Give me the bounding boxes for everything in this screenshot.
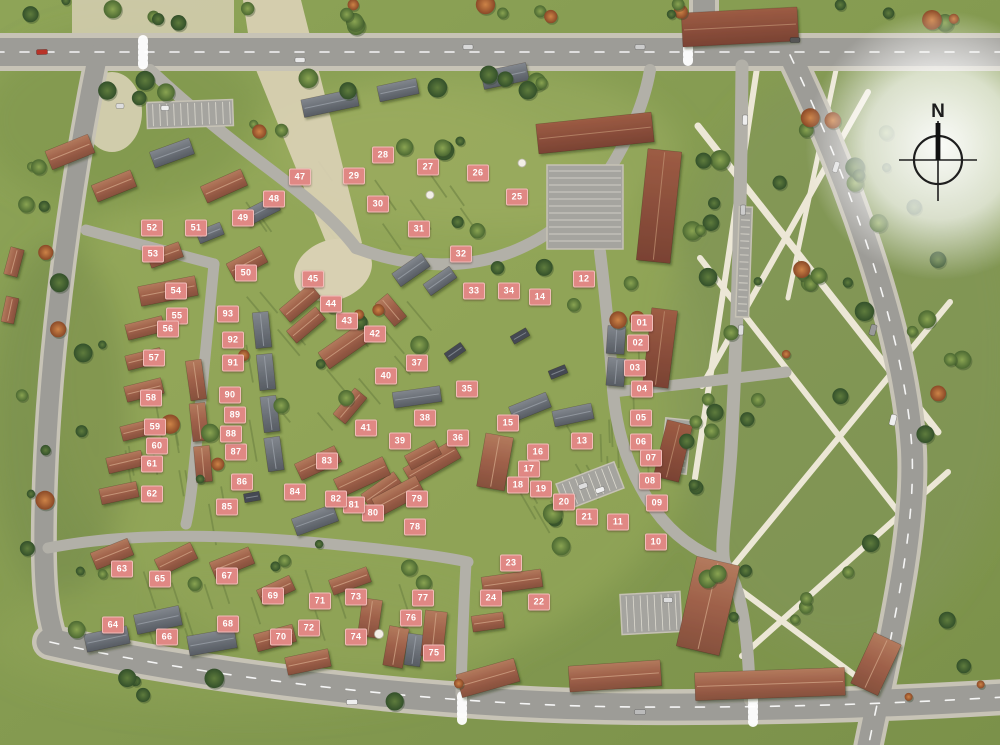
- plot-marker-52[interactable]: 52: [141, 220, 163, 237]
- plot-marker-85[interactable]: 85: [216, 499, 238, 516]
- plot-marker-62[interactable]: 62: [141, 486, 163, 503]
- compass-north-label: N: [931, 101, 945, 122]
- plot-marker-43[interactable]: 43: [336, 313, 358, 330]
- plot-marker-32[interactable]: 32: [450, 246, 472, 263]
- plot-marker-70[interactable]: 70: [270, 629, 292, 646]
- plot-marker-45[interactable]: 45: [302, 271, 324, 288]
- plot-marker-16[interactable]: 16: [527, 444, 549, 461]
- plot-marker-63[interactable]: 63: [111, 561, 133, 578]
- plot-marker-34[interactable]: 34: [498, 283, 520, 300]
- plot-marker-42[interactable]: 42: [364, 326, 386, 343]
- plot-marker-35[interactable]: 35: [456, 381, 478, 398]
- plot-marker-84[interactable]: 84: [284, 484, 306, 501]
- plot-marker-03[interactable]: 03: [624, 360, 646, 377]
- plot-marker-41[interactable]: 41: [355, 420, 377, 437]
- plot-marker-12[interactable]: 12: [573, 271, 595, 288]
- plot-marker-21[interactable]: 21: [576, 509, 598, 526]
- plot-marker-71[interactable]: 71: [309, 593, 331, 610]
- plot-marker-33[interactable]: 33: [463, 283, 485, 300]
- plot-marker-57[interactable]: 57: [143, 350, 165, 367]
- plot-marker-37[interactable]: 37: [406, 355, 428, 372]
- plot-marker-51[interactable]: 51: [185, 220, 207, 237]
- plot-marker-48[interactable]: 48: [263, 191, 285, 208]
- plot-marker-76[interactable]: 76: [400, 610, 422, 627]
- plot-marker-77[interactable]: 77: [412, 590, 434, 607]
- plot-marker-24[interactable]: 24: [480, 590, 502, 607]
- plot-marker-73[interactable]: 73: [345, 589, 367, 606]
- plot-marker-28[interactable]: 28: [372, 147, 394, 164]
- plot-marker-53[interactable]: 53: [142, 246, 164, 263]
- plot-marker-64[interactable]: 64: [102, 617, 124, 634]
- plot-marker-31[interactable]: 31: [408, 221, 430, 238]
- plot-marker-11[interactable]: 11: [607, 514, 629, 531]
- plot-marker-91[interactable]: 91: [222, 355, 244, 372]
- plot-marker-90[interactable]: 90: [219, 387, 241, 404]
- plot-marker-22[interactable]: 22: [528, 594, 550, 611]
- plot-marker-14[interactable]: 14: [529, 289, 551, 306]
- plot-marker-82[interactable]: 82: [325, 491, 347, 508]
- plot-marker-07[interactable]: 07: [640, 450, 662, 467]
- plot-marker-54[interactable]: 54: [165, 283, 187, 300]
- plot-marker-58[interactable]: 58: [140, 390, 162, 407]
- plot-marker-93[interactable]: 93: [217, 306, 239, 323]
- plot-marker-50[interactable]: 50: [235, 265, 257, 282]
- plot-marker-01[interactable]: 01: [631, 315, 653, 332]
- plot-marker-69[interactable]: 69: [262, 588, 284, 605]
- plot-marker-09[interactable]: 09: [646, 495, 668, 512]
- plot-marker-27[interactable]: 27: [417, 159, 439, 176]
- plot-marker-88[interactable]: 88: [220, 426, 242, 443]
- plot-marker-44[interactable]: 44: [320, 296, 342, 313]
- plot-marker-13[interactable]: 13: [571, 433, 593, 450]
- plot-marker-49[interactable]: 49: [232, 210, 254, 227]
- plot-marker-25[interactable]: 25: [506, 189, 528, 206]
- plot-marker-75[interactable]: 75: [423, 645, 445, 662]
- plot-marker-80[interactable]: 80: [362, 505, 384, 522]
- plot-marker-92[interactable]: 92: [222, 332, 244, 349]
- plot-marker-83[interactable]: 83: [316, 453, 338, 470]
- site-plan-map: N 01020304050607080910111213141516171819…: [0, 0, 1000, 745]
- plot-marker-40[interactable]: 40: [375, 368, 397, 385]
- plot-marker-56[interactable]: 56: [157, 321, 179, 338]
- plot-marker-86[interactable]: 86: [231, 474, 253, 491]
- plot-marker-08[interactable]: 08: [639, 473, 661, 490]
- plot-marker-67[interactable]: 67: [216, 568, 238, 585]
- plot-marker-79[interactable]: 79: [406, 491, 428, 508]
- plot-marker-10[interactable]: 10: [645, 534, 667, 551]
- plot-marker-20[interactable]: 20: [553, 494, 575, 511]
- plot-marker-60[interactable]: 60: [146, 438, 168, 455]
- plot-marker-65[interactable]: 65: [149, 571, 171, 588]
- plot-marker-38[interactable]: 38: [414, 410, 436, 427]
- plot-marker-61[interactable]: 61: [141, 456, 163, 473]
- plot-marker-68[interactable]: 68: [217, 616, 239, 633]
- plot-marker-39[interactable]: 39: [389, 433, 411, 450]
- plot-marker-78[interactable]: 78: [404, 519, 426, 536]
- plot-marker-18[interactable]: 18: [507, 477, 529, 494]
- plot-marker-87[interactable]: 87: [225, 444, 247, 461]
- plot-marker-59[interactable]: 59: [144, 419, 166, 436]
- plot-marker-66[interactable]: 66: [156, 629, 178, 646]
- plot-marker-02[interactable]: 02: [627, 335, 649, 352]
- compass-needle: [936, 123, 941, 160]
- plot-marker-17[interactable]: 17: [518, 461, 540, 478]
- aerial-scene: N: [0, 0, 1000, 745]
- plot-marker-04[interactable]: 04: [631, 381, 653, 398]
- plot-marker-74[interactable]: 74: [345, 629, 367, 646]
- plot-marker-36[interactable]: 36: [447, 430, 469, 447]
- plot-marker-47[interactable]: 47: [289, 169, 311, 186]
- plot-marker-05[interactable]: 05: [630, 410, 652, 427]
- plot-marker-26[interactable]: 26: [467, 165, 489, 182]
- plot-marker-23[interactable]: 23: [500, 555, 522, 572]
- plot-marker-15[interactable]: 15: [497, 415, 519, 432]
- plot-marker-29[interactable]: 29: [343, 168, 365, 185]
- plot-marker-89[interactable]: 89: [224, 407, 246, 424]
- plot-marker-30[interactable]: 30: [367, 196, 389, 213]
- plot-marker-06[interactable]: 06: [630, 434, 652, 451]
- plot-marker-19[interactable]: 19: [530, 481, 552, 498]
- plot-marker-72[interactable]: 72: [298, 620, 320, 637]
